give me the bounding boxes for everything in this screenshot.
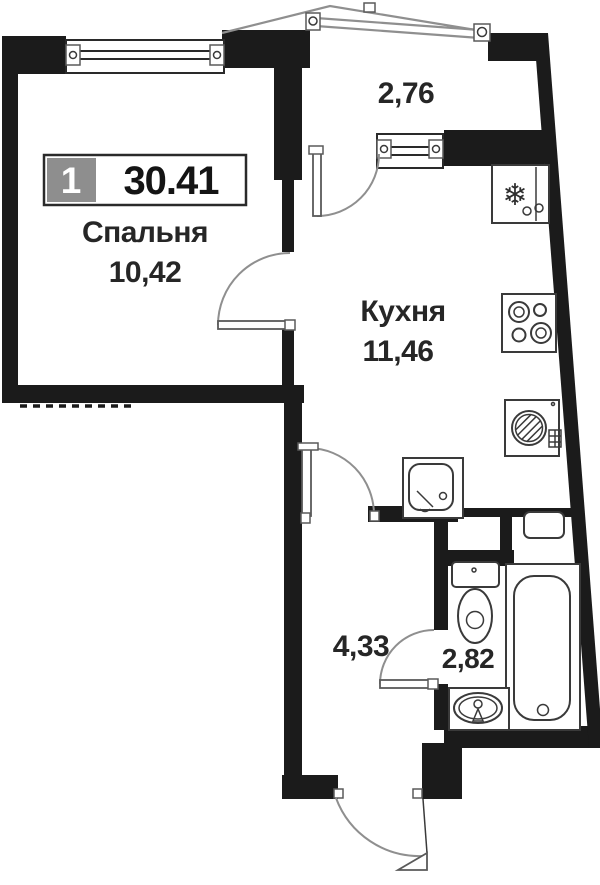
unit-badge: 1 30.41 xyxy=(44,155,246,205)
toilet-icon xyxy=(452,562,499,643)
kitchen-door xyxy=(298,443,379,523)
bathroom-shelf xyxy=(524,512,564,538)
unit-number-label: 1 xyxy=(61,160,82,201)
total-area-label: 30.41 xyxy=(123,159,219,203)
bedroom-area-label: 10,42 xyxy=(109,256,182,289)
bedroom-name-label: Спальня xyxy=(82,216,208,249)
washing-machine-icon xyxy=(505,400,561,456)
floor-plan: ❄ xyxy=(0,0,600,885)
balcony-area-label: 2,76 xyxy=(378,77,434,110)
bathroom-sink-icon xyxy=(449,688,509,730)
balcony-door xyxy=(309,146,379,216)
kitchen-name-label: Кухня xyxy=(360,295,445,328)
hallway-area-label: 4,33 xyxy=(333,630,389,663)
entrance-door xyxy=(334,789,427,870)
kitchen-sink-icon xyxy=(403,458,463,518)
stove-icon xyxy=(502,294,556,352)
bedroom-door xyxy=(218,253,295,330)
fridge-icon: ❄ xyxy=(492,165,549,223)
bedroom-window xyxy=(66,40,224,73)
bathtub-icon xyxy=(506,564,580,730)
kitchen-area-label: 11,46 xyxy=(363,335,434,368)
bathroom-area-label: 2,82 xyxy=(442,643,495,674)
balcony-door-window xyxy=(377,134,443,168)
